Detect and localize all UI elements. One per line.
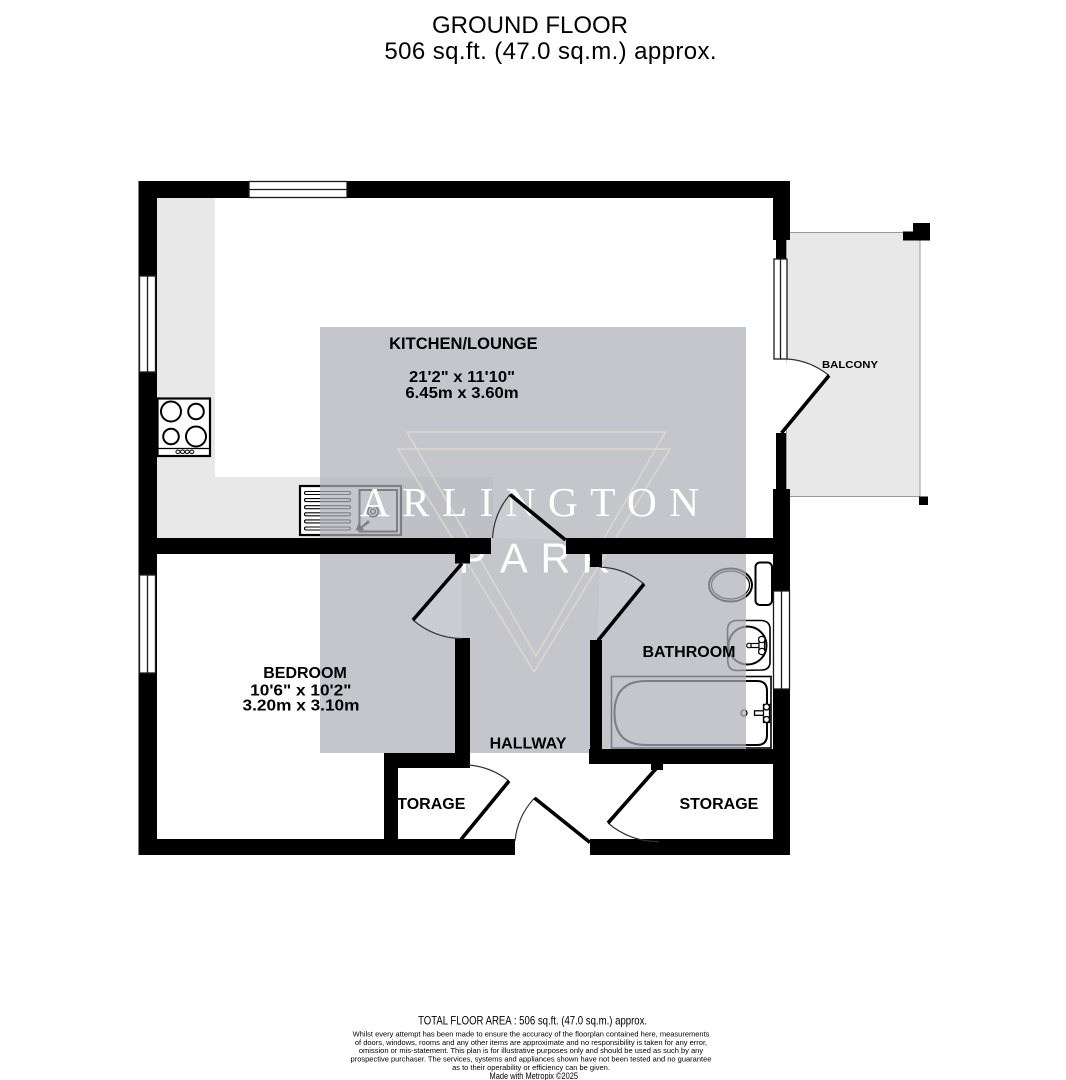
svg-text:BATHROOM: BATHROOM — [642, 644, 735, 661]
svg-text:TOTAL FLOOR AREA : 506 sq.ft.: TOTAL FLOOR AREA : 506 sq.ft. (47.0 sq.m… — [418, 1014, 647, 1028]
svg-text:A: A — [500, 535, 528, 582]
svg-text:STORAGE: STORAGE — [679, 796, 758, 813]
svg-text:6.45m x 3.60m: 6.45m x 3.60m — [405, 385, 518, 402]
svg-text:BALCONY: BALCONY — [822, 359, 878, 371]
svg-text:KITCHEN/LOUNGE: KITCHEN/LOUNGE — [389, 335, 538, 353]
svg-text:BEDROOM: BEDROOM — [263, 665, 347, 682]
svg-text:21'2" x 11'10": 21'2" x 11'10" — [409, 369, 515, 386]
svg-text:506 sq.ft. (47.0 sq.m.) approx: 506 sq.ft. (47.0 sq.m.) approx. — [384, 38, 717, 65]
svg-text:GROUND FLOOR: GROUND FLOOR — [432, 12, 628, 39]
svg-text:HALLWAY: HALLWAY — [490, 736, 567, 753]
svg-text:STORAGE: STORAGE — [387, 796, 466, 813]
svg-text:Made with Metropix ©2025: Made with Metropix ©2025 — [490, 1071, 579, 1080]
svg-text:3.20m x 3.10m: 3.20m x 3.10m — [243, 698, 360, 715]
svg-text:R: R — [541, 535, 571, 582]
